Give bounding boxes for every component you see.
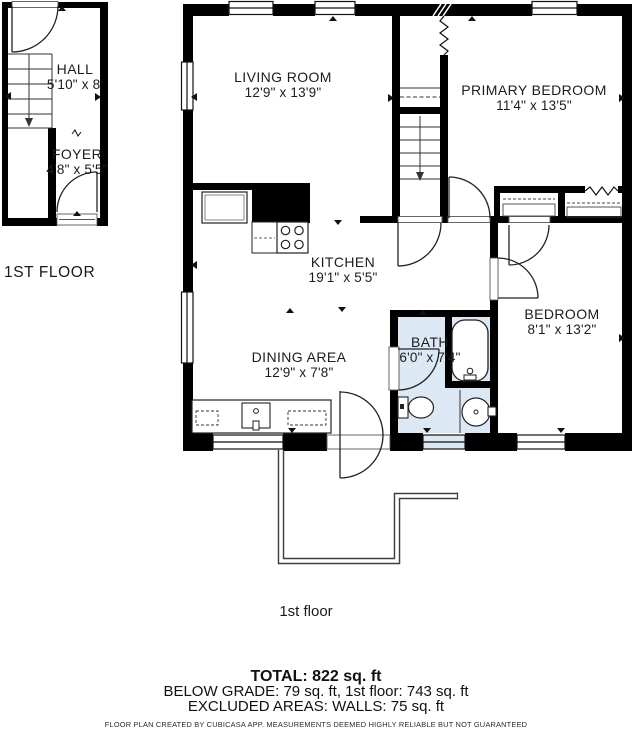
kitchen-sink [242, 403, 270, 430]
floor-plan-page: HALL 5'10" x 8' FOYER 4'8" x 5'5" LIVING… [0, 0, 632, 729]
door-small-unit-top [12, 6, 58, 52]
room-label-foyer: FOYER 4'8" x 5'5" [46, 146, 107, 178]
room-label-bath: BATH 6'0" x 7'4" [399, 334, 460, 366]
room-label-living-room: LIVING ROOM 12'9" x 13'9" [234, 69, 332, 101]
disclaimer-text: FLOOR PLAN CREATED BY CUBICASA APP. MEAS… [0, 720, 632, 729]
room-name: PRIMARY BEDROOM [461, 82, 607, 98]
room-name: KITCHEN [309, 254, 378, 270]
door-foyer [57, 172, 97, 212]
room-label-kitchen: KITCHEN 19'1" x 5'5" [309, 254, 378, 286]
excluded-areas: EXCLUDED AREAS: WALLS: 75 sq. ft [0, 699, 632, 714]
stove [277, 222, 308, 253]
stairs-main [400, 88, 440, 181]
room-label-bedroom: BEDROOM 8'1" x 13'2" [524, 306, 599, 338]
door-main-entry [340, 391, 383, 478]
room-name: HALL [47, 61, 103, 77]
room-dimensions: 4'8" x 5'5" [46, 162, 107, 178]
room-dimensions: 12'9" x 13'9" [234, 85, 332, 101]
door-bedroom-closet [509, 225, 549, 265]
room-name: BATH [399, 334, 460, 350]
stairs-small-unit [8, 54, 52, 128]
toilet [398, 397, 434, 418]
room-dimensions: 19'1" x 5'5" [309, 270, 378, 286]
room-dimensions: 11'4" x 13'5" [461, 98, 607, 114]
room-dimensions: 12'9" x 7'8" [252, 365, 347, 381]
room-label-hall: HALL 5'10" x 8' [47, 61, 103, 93]
area-breakdown: BELOW GRADE: 79 sq. ft, 1st floor: 743 s… [0, 684, 632, 699]
room-name: BEDROOM [524, 306, 599, 322]
room-name: FOYER [46, 146, 107, 162]
room-label-primary-bedroom: PRIMARY BEDROOM 11'4" x 13'5" [461, 82, 607, 114]
small-unit-floor-label: 1ST FLOOR [4, 264, 95, 282]
door-kitchen [398, 223, 441, 266]
total-area: TOTAL: 822 sq. ft [0, 669, 632, 684]
floor-caption: 1st floor [279, 603, 332, 620]
room-label-dining-area: DINING AREA 12'9" x 7'8" [252, 349, 347, 381]
door-primary-bedroom [449, 177, 490, 218]
area-summary: TOTAL: 822 sq. ft BELOW GRADE: 79 sq. ft… [0, 669, 632, 714]
room-dimensions: 5'10" x 8' [47, 77, 103, 93]
dining-fixtures [192, 400, 331, 433]
room-name: LIVING ROOM [234, 69, 332, 85]
kitchen-counter [252, 222, 277, 253]
room-dimensions: 8'1" x 13'2" [524, 322, 599, 338]
door-bedroom [498, 258, 538, 298]
room-dimensions: 6'0" x 7'4" [399, 350, 460, 366]
kitchen-cabinet [202, 192, 247, 223]
room-name: DINING AREA [252, 349, 347, 365]
